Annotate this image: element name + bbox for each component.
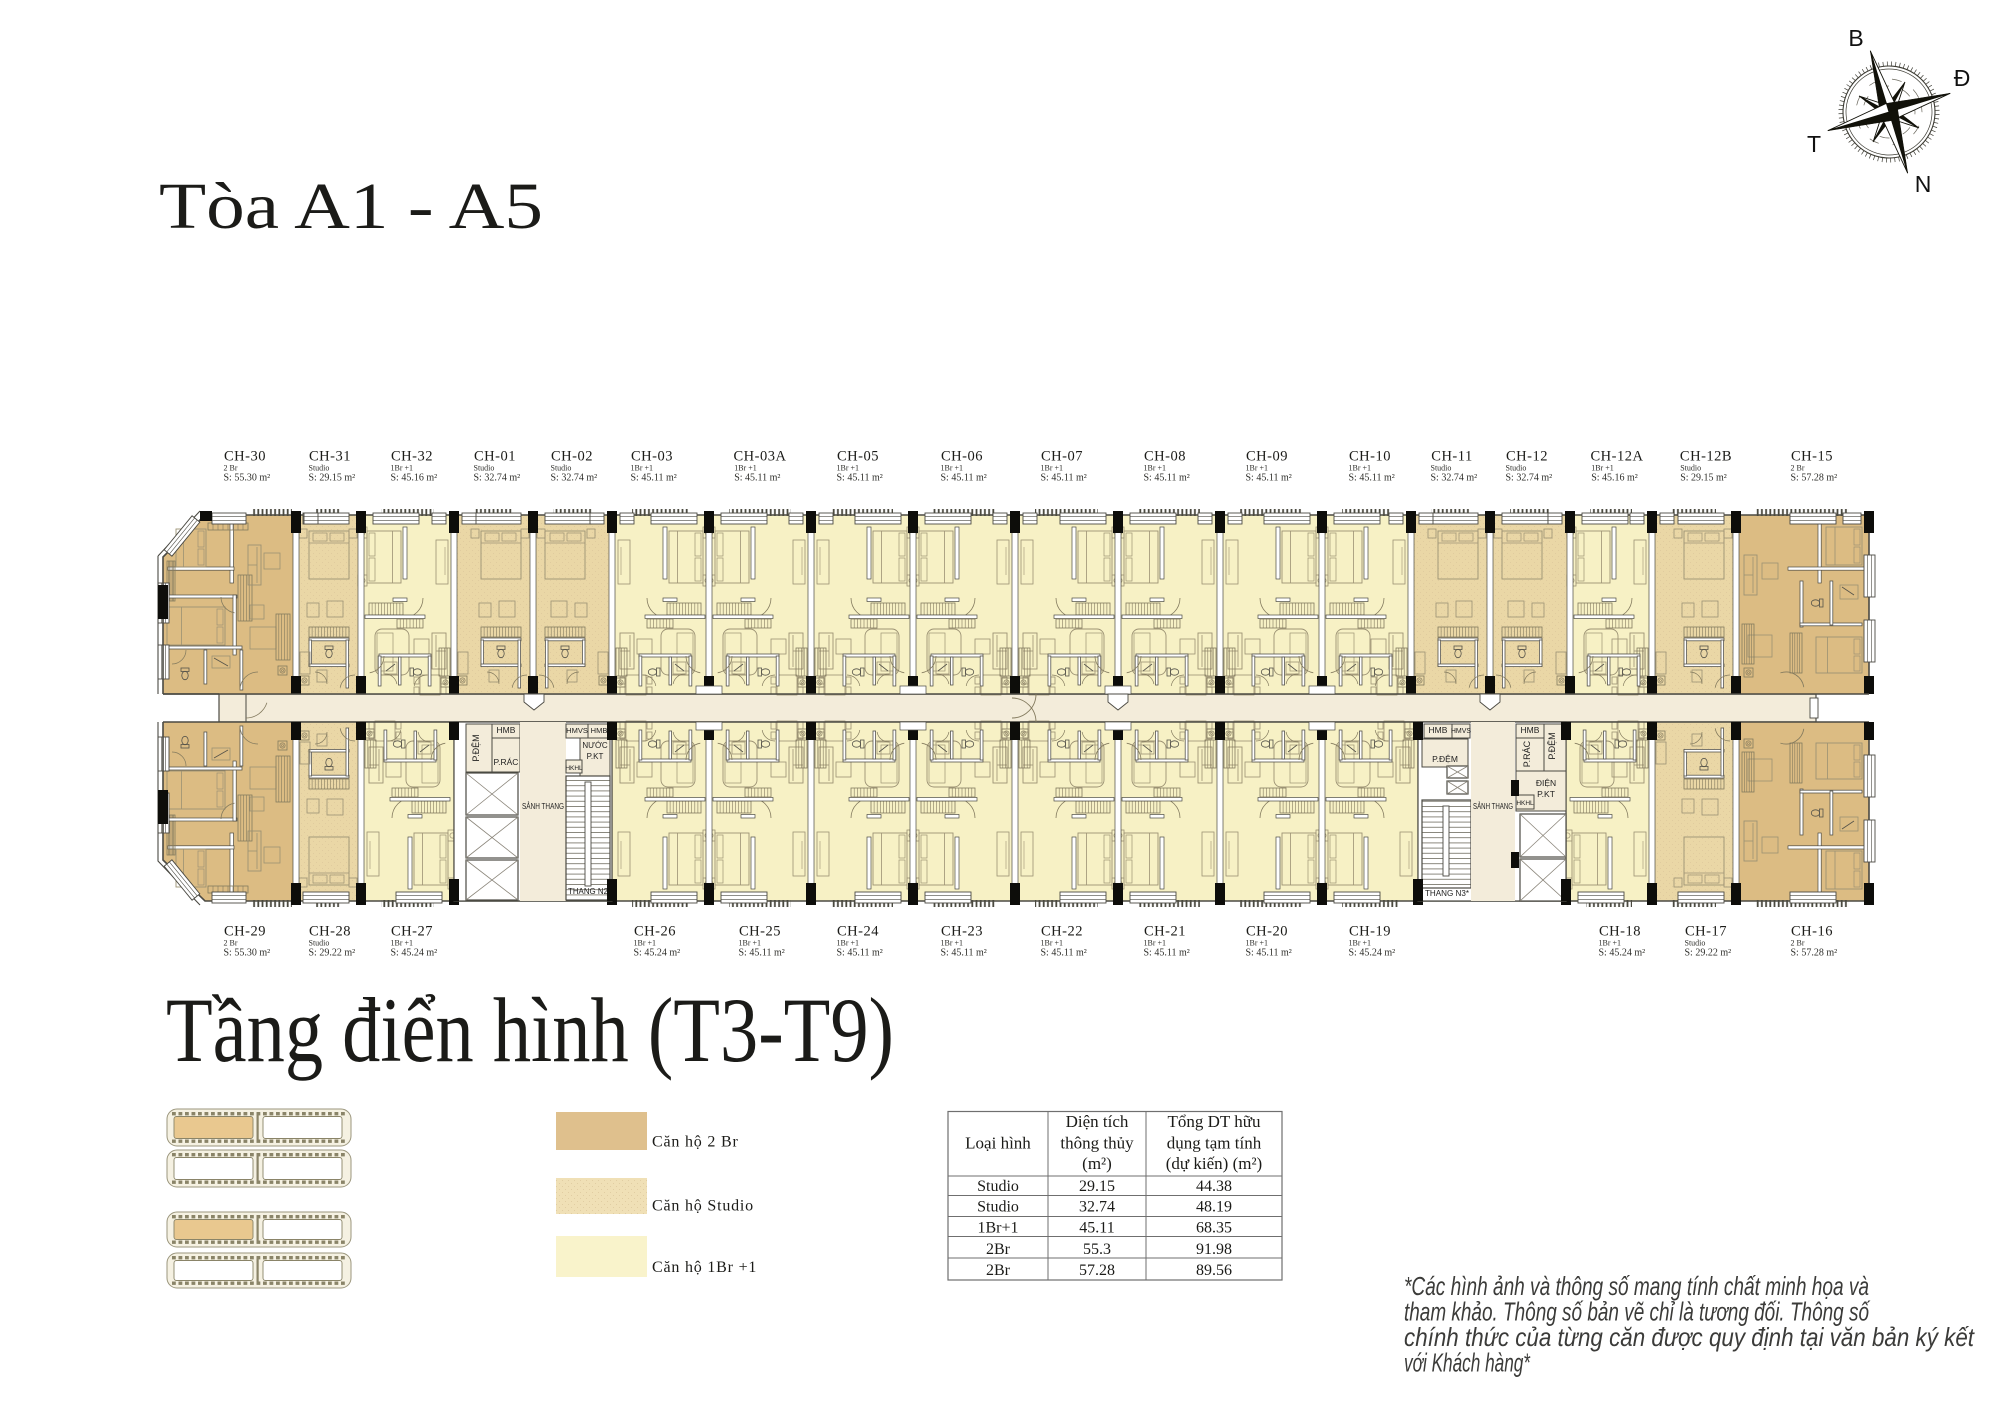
svg-text:CH-09: CH-09: [1246, 449, 1288, 465]
svg-text:44.38: 44.38: [1196, 1178, 1232, 1195]
svg-text:1Br +1: 1Br +1: [739, 939, 762, 948]
svg-text:S: 29.15 m²: S: 29.15 m²: [309, 473, 356, 484]
svg-text:Tầng điển hình (T3-T9): Tầng điển hình (T3-T9): [166, 979, 894, 1081]
svg-text:1Br +1: 1Br +1: [1144, 939, 1167, 948]
svg-text:57.28: 57.28: [1079, 1262, 1115, 1279]
svg-text:55.3: 55.3: [1083, 1241, 1111, 1258]
svg-text:CH-12: CH-12: [1506, 449, 1548, 465]
svg-text:S: 45.11 m²: S: 45.11 m²: [1349, 473, 1395, 484]
svg-text:HMB: HMB: [1521, 725, 1540, 735]
svg-text:Diện tích: Diện tích: [1066, 1112, 1129, 1131]
svg-text:Studio: Studio: [1680, 464, 1701, 473]
svg-text:CH-07: CH-07: [1041, 449, 1083, 465]
svg-text:2 Br: 2 Br: [224, 939, 238, 948]
svg-text:CH-23: CH-23: [941, 924, 983, 940]
svg-text:Studio: Studio: [1506, 464, 1527, 473]
svg-text:91.98: 91.98: [1196, 1241, 1232, 1258]
svg-text:N: N: [1915, 171, 1932, 197]
svg-text:1Br +1: 1Br +1: [837, 939, 860, 948]
svg-text:1Br+1: 1Br+1: [977, 1220, 1018, 1237]
svg-text:S: 45.11 m²: S: 45.11 m²: [1144, 948, 1190, 959]
svg-text:HMB: HMB: [497, 725, 516, 735]
svg-text:2 Br: 2 Br: [1791, 464, 1805, 473]
svg-text:Căn hộ 1Br +1: Căn hộ 1Br +1: [652, 1259, 757, 1276]
svg-text:HMB: HMB: [1429, 725, 1448, 735]
svg-text:HMB: HMB: [591, 726, 608, 735]
svg-text:CH-28: CH-28: [309, 924, 351, 940]
svg-text:1Br +1: 1Br +1: [1599, 939, 1622, 948]
svg-text:1Br +1: 1Br +1: [391, 464, 414, 473]
svg-text:29.15: 29.15: [1079, 1178, 1115, 1195]
svg-text:45.11: 45.11: [1079, 1220, 1114, 1237]
svg-text:dụng tạm tính: dụng tạm tính: [1167, 1134, 1262, 1153]
svg-text:thông thủy: thông thủy: [1060, 1134, 1134, 1153]
svg-text:Studio: Studio: [1431, 464, 1452, 473]
svg-text:Loại hình: Loại hình: [965, 1134, 1031, 1153]
svg-text:2 Br: 2 Br: [1791, 939, 1805, 948]
svg-text:HKHL: HKHL: [1516, 800, 1534, 807]
svg-text:CH-19: CH-19: [1349, 924, 1391, 940]
svg-text:B: B: [1848, 25, 1863, 51]
svg-text:1Br +1: 1Br +1: [1246, 464, 1269, 473]
svg-text:THANG N3*: THANG N3*: [1425, 889, 1469, 898]
svg-text:HKHL: HKHL: [565, 765, 583, 772]
svg-text:CH-32: CH-32: [391, 449, 433, 465]
svg-text:S: 32.74 m²: S: 32.74 m²: [1431, 473, 1478, 484]
svg-text:1Br +1: 1Br +1: [941, 939, 964, 948]
svg-text:S: 29.15 m²: S: 29.15 m²: [1680, 473, 1727, 484]
svg-text:1Br +1: 1Br +1: [1144, 464, 1167, 473]
svg-text:1Br +1: 1Br +1: [837, 464, 860, 473]
svg-text:Studio: Studio: [977, 1178, 1019, 1195]
svg-text:1Br +1: 1Br +1: [1041, 939, 1064, 948]
svg-text:Căn hộ 2 Br: Căn hộ 2 Br: [652, 1134, 739, 1151]
svg-text:S: 57.28 m²: S: 57.28 m²: [1791, 948, 1838, 959]
svg-text:Studio: Studio: [1685, 939, 1706, 948]
svg-text:S: 45.11 m²: S: 45.11 m²: [1144, 473, 1190, 484]
svg-text:CH-03: CH-03: [631, 449, 673, 465]
svg-text:S: 45.11 m²: S: 45.11 m²: [941, 948, 987, 959]
svg-text:Studio: Studio: [474, 464, 495, 473]
svg-text:S: 55.30 m²: S: 55.30 m²: [224, 948, 271, 959]
svg-text:CH-12A: CH-12A: [1591, 449, 1644, 465]
svg-text:S: 45.11 m²: S: 45.11 m²: [1041, 473, 1087, 484]
svg-text:2 Br: 2 Br: [224, 464, 238, 473]
svg-text:CH-05: CH-05: [837, 449, 879, 465]
svg-text:CH-17: CH-17: [1685, 924, 1727, 940]
svg-text:SẢNH THANG: SẢNH THANG: [1473, 802, 1513, 811]
svg-text:với Khách hàng*: với Khách hàng*: [1404, 1348, 1531, 1378]
svg-text:S: 45.11 m²: S: 45.11 m²: [1041, 948, 1087, 959]
svg-text:1Br +1: 1Br +1: [1349, 939, 1372, 948]
svg-text:1Br +1: 1Br +1: [734, 464, 757, 473]
svg-text:S: 32.74 m²: S: 32.74 m²: [474, 473, 521, 484]
svg-text:1Br +1: 1Br +1: [631, 464, 654, 473]
svg-text:P.ĐỆM: P.ĐỆM: [1432, 754, 1458, 764]
svg-text:CH-29: CH-29: [224, 924, 266, 940]
svg-text:CH-31: CH-31: [309, 449, 351, 465]
svg-text:S: 45.24 m²: S: 45.24 m²: [1599, 948, 1646, 959]
svg-text:S: 45.11 m²: S: 45.11 m²: [837, 473, 883, 484]
svg-text:CH-11: CH-11: [1431, 449, 1472, 465]
svg-text:S: 45.11 m²: S: 45.11 m²: [837, 948, 883, 959]
svg-text:Studio: Studio: [309, 939, 330, 948]
svg-text:1Br +1: 1Br +1: [1246, 939, 1269, 948]
svg-text:S: 45.24 m²: S: 45.24 m²: [391, 948, 438, 959]
svg-text:1Br +1: 1Br +1: [634, 939, 657, 948]
svg-text:CH-06: CH-06: [941, 449, 983, 465]
svg-text:CH-08: CH-08: [1144, 449, 1186, 465]
svg-text:CH-22: CH-22: [1041, 924, 1083, 940]
svg-text:CH-02: CH-02: [551, 449, 593, 465]
svg-text:S: 45.16 m²: S: 45.16 m²: [391, 473, 438, 484]
svg-text:(dự kiến) (m²): (dự kiến) (m²): [1166, 1154, 1262, 1173]
svg-text:HMVS: HMVS: [1451, 728, 1472, 735]
svg-text:CH-03A: CH-03A: [734, 449, 787, 465]
svg-text:CH-18: CH-18: [1599, 924, 1641, 940]
svg-text:CH-30: CH-30: [224, 449, 266, 465]
svg-text:CH-15: CH-15: [1791, 449, 1833, 465]
svg-text:S: 29.22 m²: S: 29.22 m²: [1685, 948, 1732, 959]
svg-text:P.ĐỆM: P.ĐỆM: [471, 734, 481, 761]
svg-text:1Br +1: 1Br +1: [1041, 464, 1064, 473]
svg-text:Studio: Studio: [977, 1199, 1019, 1216]
svg-text:CH-26: CH-26: [634, 924, 676, 940]
svg-text:1Br +1: 1Br +1: [1349, 464, 1372, 473]
svg-text:68.35: 68.35: [1196, 1220, 1232, 1237]
svg-text:CH-25: CH-25: [739, 924, 781, 940]
svg-text:2Br: 2Br: [986, 1262, 1011, 1279]
svg-text:Tổng DT hữu: Tổng DT hữu: [1168, 1112, 1261, 1131]
svg-text:S: 45.24 m²: S: 45.24 m²: [1349, 948, 1396, 959]
svg-text:CH-27: CH-27: [391, 924, 433, 940]
svg-text:S: 45.24 m²: S: 45.24 m²: [634, 948, 681, 959]
svg-text:P.KT: P.KT: [587, 752, 604, 761]
svg-text:ĐIỆN: ĐIỆN: [1536, 778, 1556, 788]
svg-text:CH-01: CH-01: [474, 449, 516, 465]
svg-text:CH-20: CH-20: [1246, 924, 1288, 940]
svg-text:S: 45.11 m²: S: 45.11 m²: [1246, 473, 1292, 484]
svg-text:NƯỚC: NƯỚC: [582, 741, 607, 750]
svg-text:P.RÁC: P.RÁC: [494, 757, 519, 767]
svg-text:32.74: 32.74: [1079, 1199, 1115, 1216]
svg-text:S: 29.22 m²: S: 29.22 m²: [309, 948, 356, 959]
svg-text:S: 32.74 m²: S: 32.74 m²: [1506, 473, 1553, 484]
svg-text:S: 45.11 m²: S: 45.11 m²: [734, 473, 780, 484]
svg-text:HMVS: HMVS: [566, 726, 588, 735]
svg-text:S: 32.74 m²: S: 32.74 m²: [551, 473, 598, 484]
svg-text:THANG N2: THANG N2: [568, 887, 609, 896]
svg-text:S: 55.30 m²: S: 55.30 m²: [224, 473, 271, 484]
svg-text:S: 57.28 m²: S: 57.28 m²: [1791, 473, 1838, 484]
svg-text:T: T: [1807, 131, 1821, 157]
svg-text:Đ: Đ: [1954, 65, 1971, 91]
svg-text:Căn hộ Studio: Căn hộ Studio: [652, 1198, 754, 1215]
svg-text:CH-10: CH-10: [1349, 449, 1391, 465]
svg-text:S: 45.11 m²: S: 45.11 m²: [941, 473, 987, 484]
svg-text:P.RÁC: P.RÁC: [1522, 740, 1532, 767]
svg-text:1Br +1: 1Br +1: [941, 464, 964, 473]
svg-text:Studio: Studio: [309, 464, 330, 473]
svg-text:2Br: 2Br: [986, 1241, 1011, 1258]
svg-text:S: 45.11 m²: S: 45.11 m²: [739, 948, 785, 959]
svg-text:P.ĐỆM: P.ĐỆM: [1547, 732, 1557, 759]
svg-text:CH-16: CH-16: [1791, 924, 1833, 940]
svg-text:S: 45.11 m²: S: 45.11 m²: [631, 473, 677, 484]
svg-text:1Br +1: 1Br +1: [391, 939, 414, 948]
svg-text:Tòa A1 - A5: Tòa A1 - A5: [159, 170, 543, 243]
svg-text:S: 45.16 m²: S: 45.16 m²: [1591, 473, 1638, 484]
svg-text:(m²): (m²): [1082, 1154, 1112, 1173]
svg-text:CH-12B: CH-12B: [1680, 449, 1732, 465]
svg-text:1Br +1: 1Br +1: [1591, 464, 1614, 473]
svg-text:Studio: Studio: [551, 464, 572, 473]
svg-text:S: 45.11 m²: S: 45.11 m²: [1246, 948, 1292, 959]
svg-text:P.KT: P.KT: [1537, 789, 1555, 799]
svg-text:CH-24: CH-24: [837, 924, 879, 940]
svg-text:48.19: 48.19: [1196, 1199, 1232, 1216]
svg-text:CH-21: CH-21: [1144, 924, 1186, 940]
svg-text:89.56: 89.56: [1196, 1262, 1232, 1279]
svg-text:SẢNH THANG: SẢNH THANG: [522, 802, 564, 811]
